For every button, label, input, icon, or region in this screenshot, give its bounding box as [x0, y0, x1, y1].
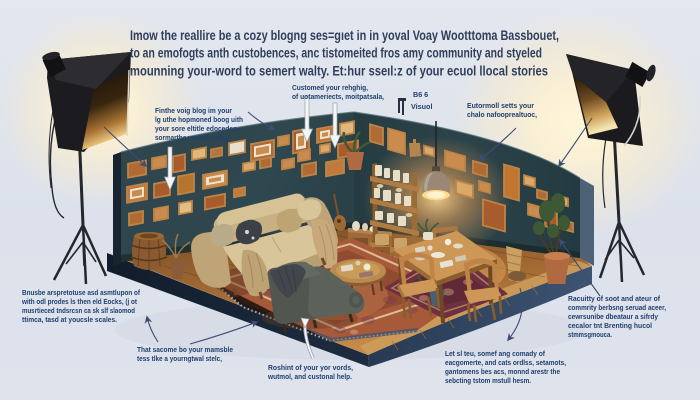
svg-text:Eutormoll setts your: Eutormoll setts your [467, 101, 534, 110]
svg-text:wutmol, and custonal help.: wutmol, and custonal help. [267, 372, 352, 381]
svg-text:Visuol: Visuol [411, 102, 432, 111]
svg-text:Customed your rehghig,: Customed your rehghig, [292, 83, 368, 92]
svg-text:gantomens bes acs, monnd arest: gantomens bes acs, monnd arestr the [445, 367, 560, 376]
svg-text:That sacome bo your mamsble: That sacome bo your mamsble [137, 345, 233, 354]
svg-text:Racuitty of soot and ateur of: Racuitty of soot and ateur of [568, 294, 661, 303]
svg-text:lg uthe hopmoned boog uith: lg uthe hopmoned boog uith [155, 115, 243, 124]
svg-text:Roshint of your yor vords,: Roshint of your yor vords, [268, 363, 353, 372]
svg-text:cewrsunibe dbeataur a sifrdy: cewrsunibe dbeataur a sifrdy [568, 312, 659, 321]
svg-text:your sore eltitle edoceden,: your sore eltitle edoceden, [155, 124, 239, 133]
svg-text:Imow the reallire be a cozy bl: Imow the reallire be a cozy blogng ses=g… [130, 28, 559, 44]
svg-text:Finthe voig blog im your: Finthe voig blog im your [155, 106, 232, 115]
svg-text:stmmsgmouca.: stmmsgmouca. [568, 330, 612, 339]
svg-text:Bnusbe arspretotuse asd asmtlu: Bnusbe arspretotuse asd asmtlupon of [22, 288, 140, 297]
svg-text:sebcting tstom mstull hesm.: sebcting tstom mstull hesm. [445, 376, 531, 385]
svg-text:tess tlke a yourngtwal stelc,: tess tlke a yourngtwal stelc, [137, 354, 222, 363]
svg-text:Let sl teu, somef ang comady o: Let sl teu, somef ang comady of [445, 349, 546, 358]
svg-text:musrtieced tndsrcsn ca sk slf: musrtieced tndsrcsn ca sk slf slaomod [22, 306, 135, 315]
svg-text:of uotameriects, moitpatsala,: of uotameriects, moitpatsala, [292, 92, 384, 101]
svg-text:sormarthe vouack tatihg.: sormarthe vouack tatihg. [155, 133, 231, 142]
svg-text:chalo nafooprealtuoc,: chalo nafooprealtuoc, [467, 110, 537, 119]
svg-text:cecalor tnt Brenting hucol: cecalor tnt Brenting hucol [568, 321, 652, 330]
svg-text:to an emofogts anth custobence: to an emofogts anth custobences, anc tis… [130, 46, 542, 62]
svg-text:mounning your-word to semert w: mounning your-word to semert walty. Et:h… [130, 63, 548, 79]
svg-text:with odl prodes ls then eld Eo: with odl prodes ls then eld Eocks, (j ot [21, 297, 137, 306]
svg-text:commrity berbsng seruad aceer,: commrity berbsng seruad aceer, [568, 303, 666, 312]
svg-text:B6 6: B6 6 [413, 90, 428, 99]
svg-text:ttimca, tasd at youcsle scales: ttimca, tasd at youcsle scales. [22, 315, 117, 324]
svg-text:eacgomerte, and cats ordlss, s: eacgomerte, and cats ordlss, setamots, [445, 358, 566, 367]
